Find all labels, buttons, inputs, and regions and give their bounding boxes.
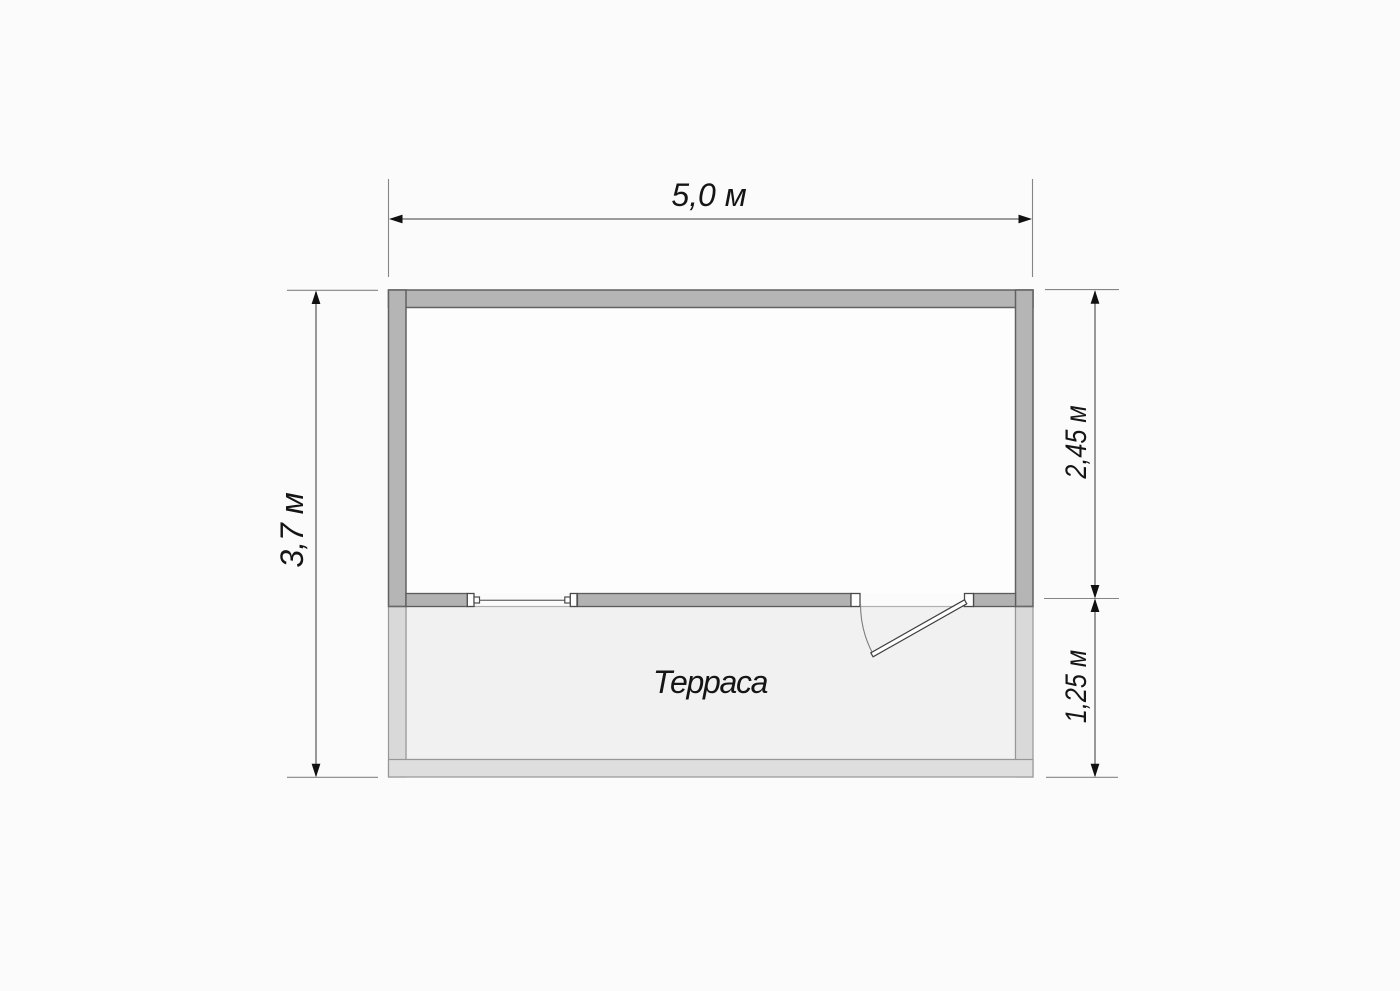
svg-text:1,25 м: 1,25 м [1059,650,1093,723]
svg-text:Терраса: Терраса [653,664,768,700]
svg-text:2,45 м: 2,45 м [1059,405,1093,479]
svg-text:3,7 м: 3,7 м [274,492,310,567]
svg-text:5,0 м: 5,0 м [671,177,746,213]
